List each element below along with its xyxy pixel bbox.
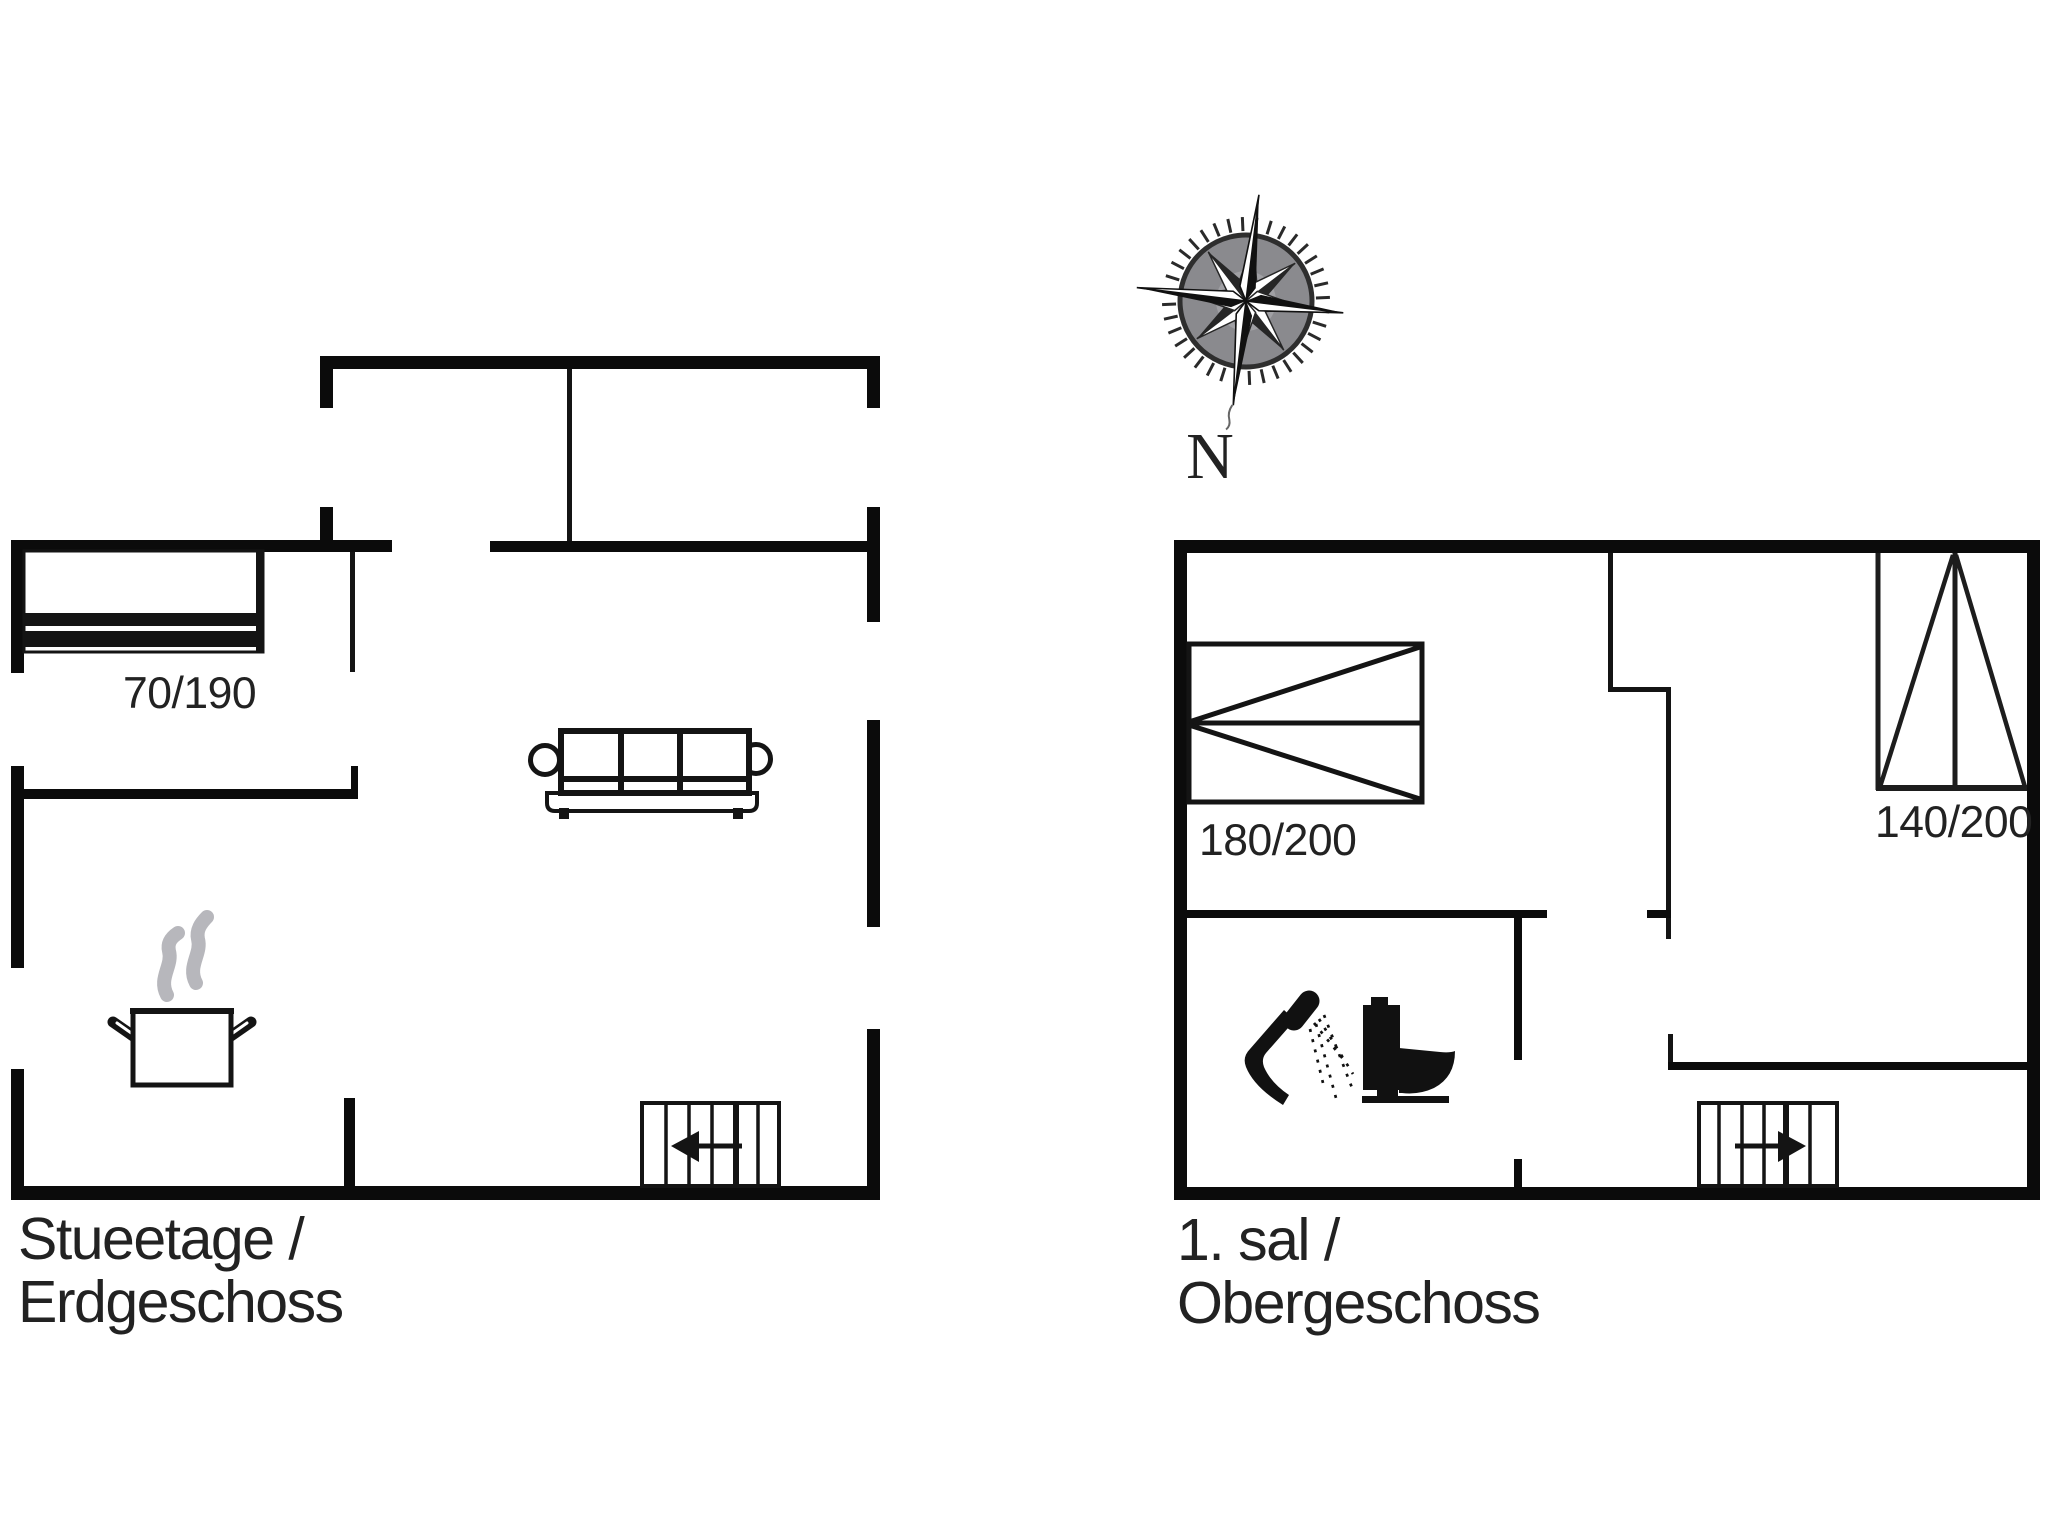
- svg-text:Obergeschoss: Obergeschoss: [1177, 1270, 1539, 1336]
- svg-text:1. sal /: 1. sal /: [1177, 1207, 1341, 1273]
- svg-text:Erdgeschoss: Erdgeschoss: [18, 1269, 343, 1335]
- svg-text:180/200: 180/200: [1199, 816, 1356, 865]
- svg-text:N: N: [1186, 420, 1234, 493]
- svg-text:140/200: 140/200: [1875, 798, 2032, 847]
- svg-text:70/190: 70/190: [123, 669, 256, 718]
- svg-text:Stueetage /: Stueetage /: [18, 1206, 305, 1272]
